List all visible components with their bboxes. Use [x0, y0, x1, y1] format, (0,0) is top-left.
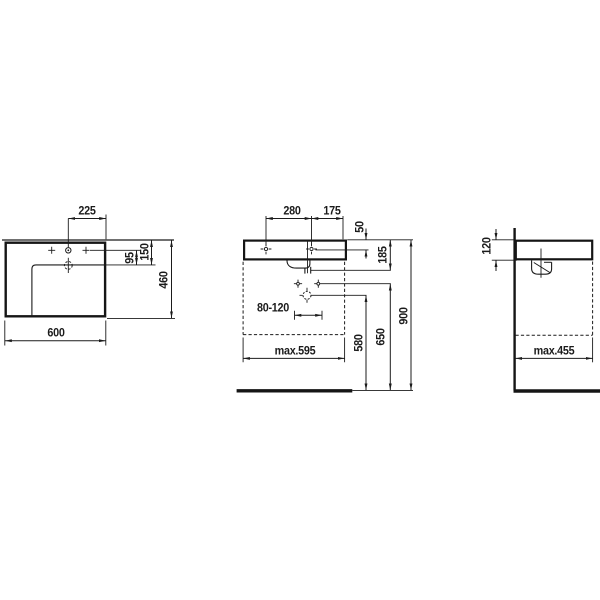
dim-label-175: 175 [323, 206, 340, 218]
fixing-bolt-marker [294, 280, 320, 288]
tap-hole-marker [66, 248, 71, 253]
side-view [492, 228, 600, 391]
dim-label-650: 650 [376, 328, 388, 345]
dim-label-50: 50 [355, 221, 367, 232]
dim-label-580: 580 [354, 334, 366, 351]
technical-drawing-canvas: 225 95 150 460 600 280 175 50 185 80-120… [0, 0, 600, 600]
dim-label-900: 900 [399, 307, 411, 324]
drain-center-marker [300, 288, 312, 303]
dim-label-225: 225 [78, 206, 95, 218]
plan-basin-outline [6, 243, 105, 317]
dim-label-460: 460 [159, 271, 171, 288]
clearance-envelope [243, 262, 345, 335]
dim-label-600: 600 [47, 328, 64, 340]
dim-label-max595: max.595 [274, 346, 315, 358]
side-basin-outline [516, 241, 592, 260]
fixing-hole-marker [261, 244, 317, 255]
ext-line [492, 240, 517, 260]
dim-label-95: 95 [125, 252, 137, 263]
plan-view [2, 215, 175, 346]
dim-label-280: 280 [283, 206, 300, 218]
dim-label-150: 150 [140, 243, 152, 260]
right-tap-cross-marker [83, 247, 90, 254]
dim-label-max455: max.455 [534, 346, 575, 358]
side-trap-outline [532, 261, 552, 275]
dim-label-120: 120 [482, 237, 494, 254]
left-tap-cross-marker [48, 247, 55, 254]
dim-label-185: 185 [378, 246, 390, 263]
dim-label-80-120: 80-120 [257, 303, 289, 315]
drawing-linework [0, 0, 600, 600]
clearance-envelope [516, 262, 593, 336]
